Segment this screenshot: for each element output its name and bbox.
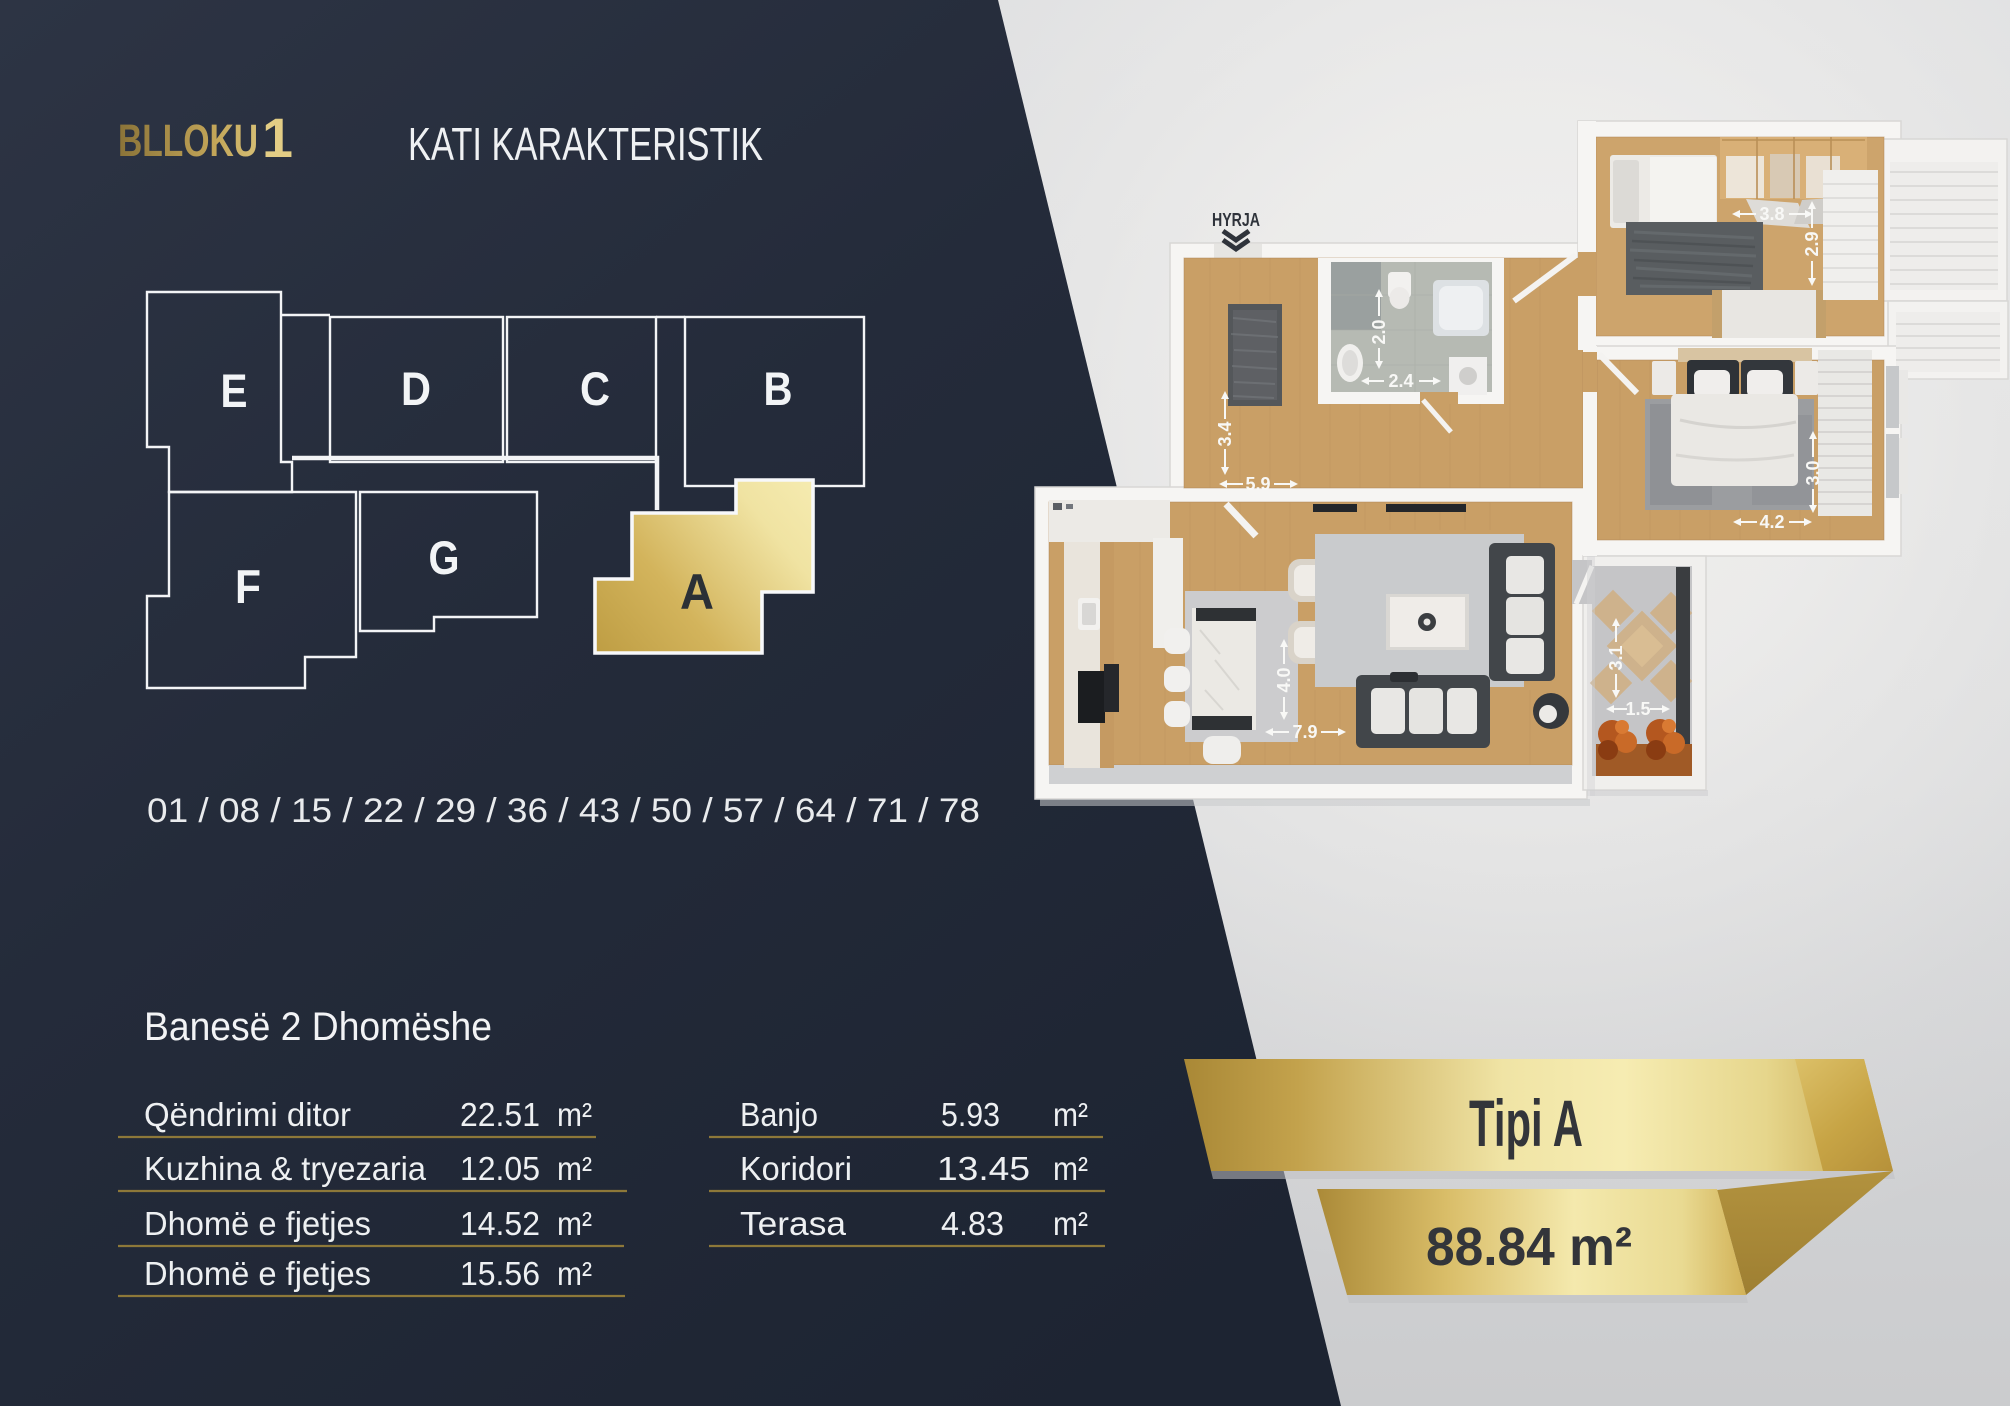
svg-text:12.05: 12.05 [460,1150,540,1187]
svg-text:G: G [429,531,460,584]
svg-text:2.0: 2.0 [1369,319,1389,344]
svg-text:m²: m² [557,1096,592,1133]
svg-text:3.4: 3.4 [1215,421,1235,446]
svg-text:HYRJA: HYRJA [1212,210,1260,230]
svg-text:1: 1 [262,106,293,169]
svg-text:C: C [580,362,610,415]
svg-text:15.56: 15.56 [460,1255,540,1292]
svg-text:7.9: 7.9 [1292,722,1317,742]
svg-text:D: D [401,362,431,415]
svg-text:4.2: 4.2 [1759,512,1784,532]
svg-text:Banjo: Banjo [740,1096,818,1133]
svg-text:13.45: 13.45 [937,1150,1030,1187]
svg-text:Banesë 2 Dhomëshe: Banesë 2 Dhomëshe [144,1005,492,1049]
svg-text:01 / 08 / 15 / 22 / 29 / 36 /: 01 / 08 / 15 / 22 / 29 / 36 / 43 / 50 / … [147,792,980,830]
svg-text:m²: m² [1053,1096,1088,1133]
svg-text:A: A [680,564,714,620]
svg-text:Dhomë e fjetjes: Dhomë e fjetjes [144,1255,371,1292]
svg-text:1.5: 1.5 [1625,699,1650,719]
svg-text:3.0: 3.0 [1803,460,1823,485]
svg-text:m²: m² [557,1205,592,1242]
svg-text:KATI KARAKTERISTIK: KATI KARAKTERISTIK [408,118,763,170]
svg-text:E: E [221,364,248,417]
svg-text:4.83: 4.83 [941,1205,1004,1242]
svg-text:2.9: 2.9 [1802,231,1822,256]
svg-text:m²: m² [557,1255,592,1292]
svg-text:14.52: 14.52 [460,1205,540,1242]
svg-text:3.1: 3.1 [1606,645,1626,670]
svg-text:m²: m² [1053,1205,1088,1242]
svg-text:Kuzhina & tryezaria: Kuzhina & tryezaria [144,1150,427,1187]
svg-text:m²: m² [557,1150,592,1187]
svg-text:m²: m² [1053,1150,1088,1187]
svg-text:2.4: 2.4 [1388,371,1413,391]
svg-text:3.8: 3.8 [1759,204,1784,224]
svg-text:Tipi A: Tipi A [1469,1086,1583,1160]
svg-text:F: F [235,560,261,613]
svg-text:88.84 m²: 88.84 m² [1426,1217,1632,1277]
svg-text:Qëndrimi ditor: Qëndrimi ditor [144,1096,351,1133]
svg-text:22.51: 22.51 [460,1096,540,1133]
svg-text:B: B [764,362,793,415]
svg-text:BLLOKU: BLLOKU [118,115,258,166]
svg-text:Terasa: Terasa [740,1205,847,1242]
svg-text:5.93: 5.93 [941,1096,1000,1133]
svg-text:Koridori: Koridori [740,1150,852,1187]
svg-text:4.0: 4.0 [1274,667,1294,692]
svg-text:Dhomë e fjetjes: Dhomë e fjetjes [144,1205,371,1242]
svg-text:5.9: 5.9 [1245,474,1270,494]
